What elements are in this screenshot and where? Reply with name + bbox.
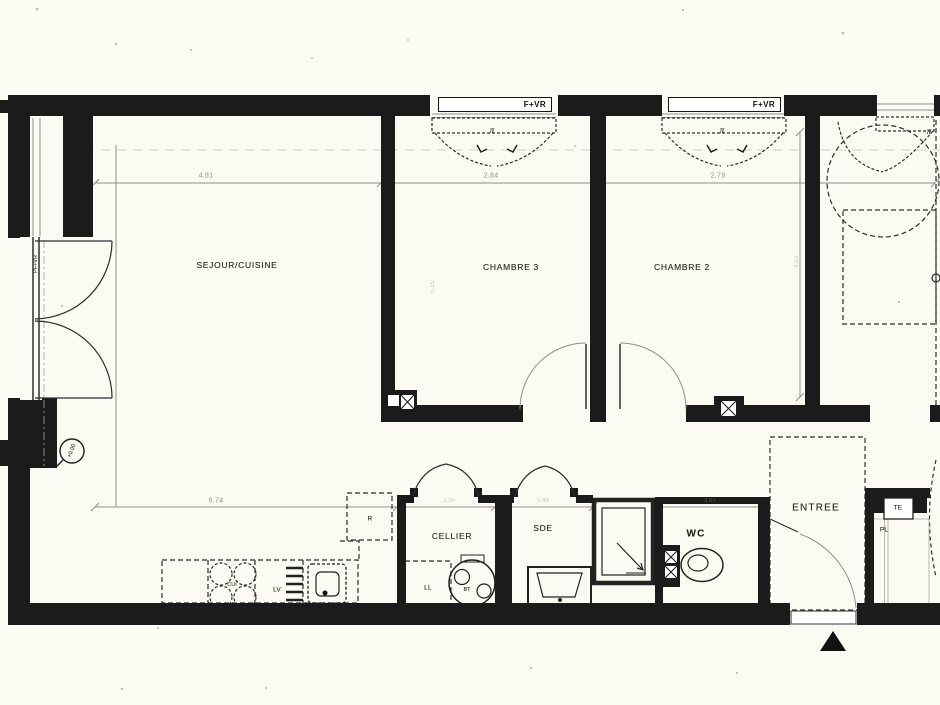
chambre3-door	[520, 343, 586, 409]
fixture-label-washer: LL	[424, 585, 432, 592]
dashed-fixtures	[162, 120, 940, 610]
window-label-1-text: F+VR	[524, 100, 546, 109]
dim-sejour-width: 4.81	[199, 173, 214, 180]
fixture-label-dishwasher: LV	[273, 587, 281, 594]
duct-box	[714, 396, 744, 422]
fixture-label-closet: PL	[880, 527, 888, 534]
window-chambre2	[662, 114, 786, 166]
window-label-1: F+VR	[438, 97, 552, 112]
window-label-2-text: F+VR	[753, 100, 775, 109]
duct-box	[662, 545, 680, 587]
bed-outline	[843, 210, 936, 324]
entrance-marker	[820, 631, 846, 651]
room-label-chambre2: CHAMBRE 2	[654, 262, 710, 272]
sink-icon	[308, 564, 346, 603]
dim-sde-width: 1.49	[537, 498, 549, 504]
entrance-threshold	[791, 611, 856, 624]
sde-door	[515, 466, 575, 496]
dim-bottom-width: 6.74	[209, 498, 224, 505]
window-chambre3	[432, 114, 556, 166]
duct-box	[383, 390, 417, 418]
walls	[0, 95, 940, 625]
dim-ch2-width: 2.79	[711, 173, 726, 180]
washbasin-icon	[528, 567, 591, 605]
shower-icon	[594, 500, 653, 583]
room-label-sde: SDE	[533, 523, 553, 533]
fixture-label-heater: BT	[463, 587, 470, 593]
pivot-symbol-2: π	[720, 125, 725, 135]
water-heater-icon	[449, 555, 495, 606]
fixture-label-fridge: R	[368, 516, 373, 523]
cellier-door	[413, 464, 479, 496]
window-label-2: F+VR	[668, 97, 781, 112]
floorplan: SEJOUR/CUISINE CHAMBRE 3 CHAMBRE 2 CELLI…	[0, 0, 940, 705]
dim-cellier-width: 1.35	[443, 498, 455, 504]
dishwasher-icon	[286, 568, 303, 600]
fixture-label-electrical: TE	[894, 505, 903, 512]
door-label-pfvr: PF+VR	[33, 255, 39, 273]
pivot-symbol-3: π	[927, 126, 932, 136]
toilet-icon	[681, 549, 723, 582]
chambre2-door	[620, 343, 686, 409]
dim-ch3-width: 2.84	[484, 173, 499, 180]
pivot-symbol-1: π	[490, 125, 495, 135]
dim-wc-width: 2.07	[704, 498, 716, 504]
room-label-wc: WC	[686, 529, 705, 540]
fixture-label-hob: CUI	[227, 582, 236, 588]
room-label-cellier: CELLIER	[432, 531, 472, 541]
room-label-chambre3: CHAMBRE 3	[483, 262, 539, 272]
dim-ch3-depth: 5.15	[430, 281, 436, 293]
entrance-door	[770, 519, 856, 608]
dim-ch2-depth: 3.23	[794, 256, 800, 268]
room-label-sejour: SEJOUR/CUISINE	[196, 260, 277, 270]
room-label-entree: ENTREE	[792, 503, 840, 514]
